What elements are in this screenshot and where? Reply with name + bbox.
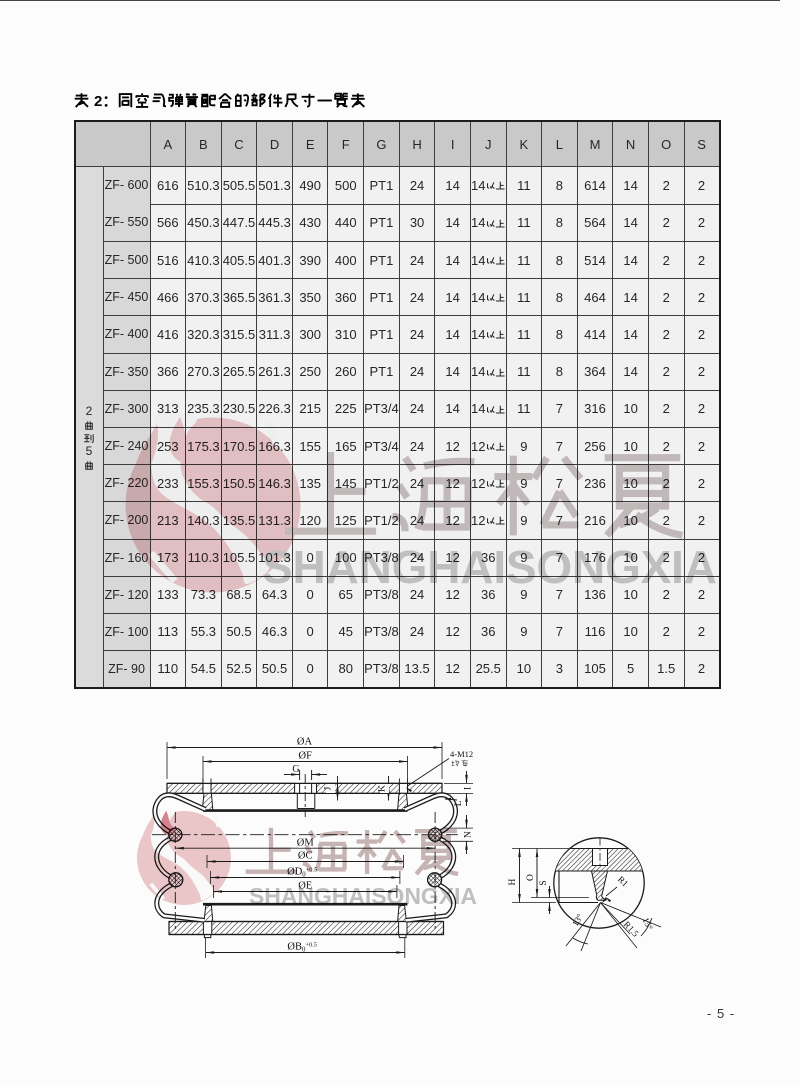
svg-text:O: O	[526, 874, 536, 881]
svg-text:SHANGHAISONGXIA: SHANGHAISONGXIA	[249, 883, 477, 909]
svg-text:S: S	[539, 880, 549, 885]
svg-text:H: H	[508, 878, 518, 885]
svg-text:I: I	[464, 787, 474, 790]
svg-text:ØA: ØA	[297, 737, 313, 748]
svg-text:5: 5	[86, 444, 93, 458]
svg-text:K: K	[378, 785, 388, 792]
svg-text:SHANGHAISONGXIA: SHANGHAISONGXIA	[262, 541, 717, 593]
svg-text:ØF: ØF	[299, 751, 313, 762]
svg-text:J: J	[324, 786, 334, 790]
svg-text:G: G	[292, 764, 299, 775]
svg-text:R1.5: R1.5	[622, 919, 641, 939]
svg-text:4-M12: 4-M12	[450, 749, 473, 759]
svg-text:2: 2	[86, 404, 93, 418]
svg-text:15°: 15°	[641, 916, 656, 932]
svg-text:2：: 2：	[94, 93, 117, 110]
